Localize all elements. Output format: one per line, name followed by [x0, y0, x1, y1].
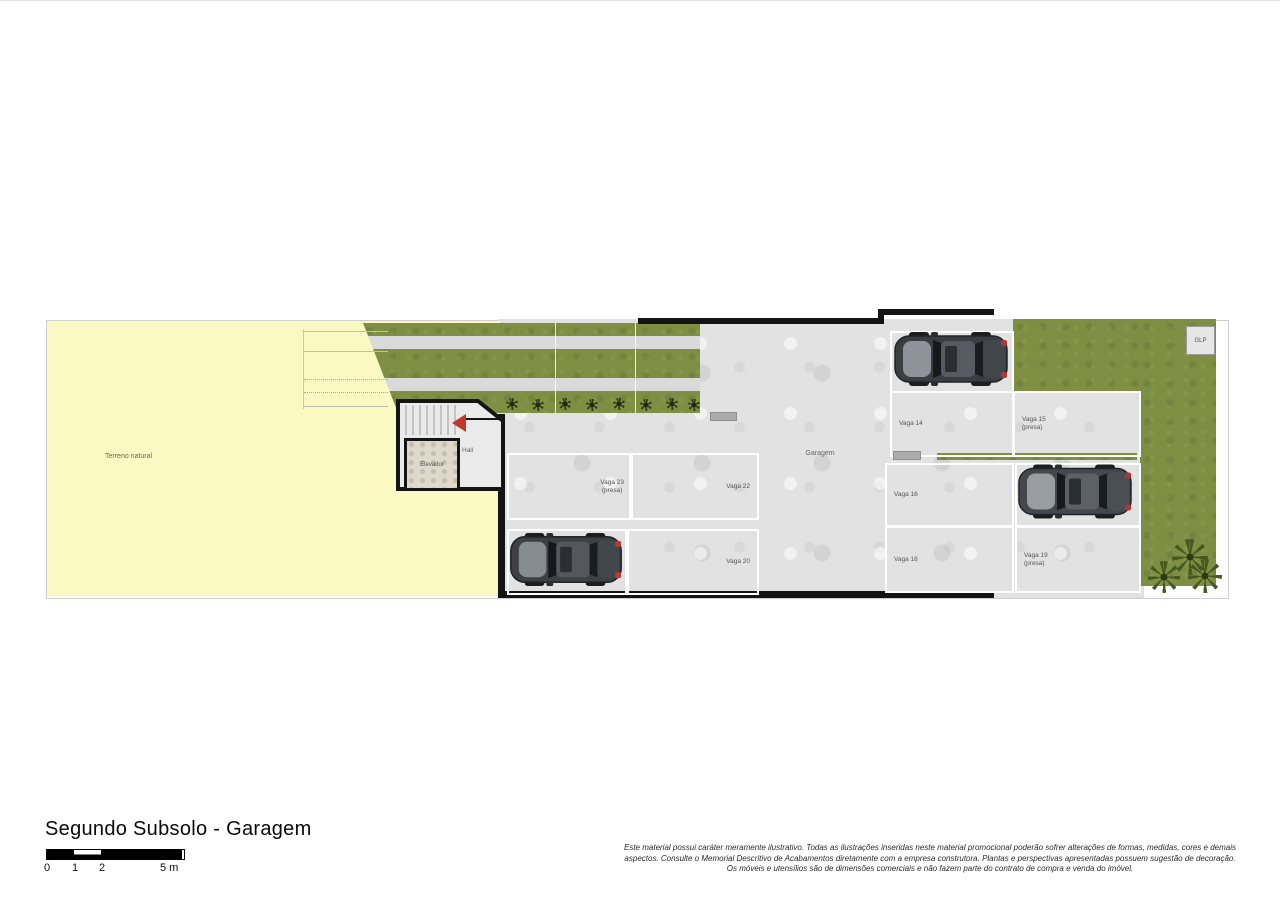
parking-spot-vaga-22: Vaga 22 [629, 453, 759, 520]
parking-spot-vaga-15: Vaga 15(presa) [1013, 391, 1141, 457]
stair-block: Elevador Hall [396, 399, 508, 491]
floor-plan-page: Terreno natural GLP [0, 0, 1280, 906]
shrub-icon [532, 399, 544, 411]
wall-top [878, 309, 994, 315]
palm-tree-icon [1188, 559, 1222, 593]
shrub-icon [613, 398, 625, 410]
shrub-icon [559, 398, 571, 410]
contour-line [304, 331, 388, 332]
shrub-icon [640, 399, 652, 411]
disclaimer-line: Os móveis e utensílios são de dimensões … [592, 864, 1268, 875]
curb-block [893, 451, 921, 460]
glp-box: GLP [1186, 326, 1215, 355]
disclaimer-line: Este material possui caráter meramente i… [592, 843, 1268, 854]
vaga-note: (presa) [1022, 424, 1043, 432]
contour-line-dotted [304, 379, 388, 380]
garage-area-label: Garagem [785, 450, 855, 457]
parking-spot-vaga-20: Vaga 20 [625, 529, 759, 595]
scale-bar [46, 849, 185, 860]
elevator-label: Elevador [420, 462, 444, 468]
wall-top [638, 318, 884, 324]
contour-line [304, 406, 388, 407]
scale-numbers: 0 1 2 5 m [42, 862, 187, 876]
joint-line [635, 323, 636, 413]
shrub-icon [688, 399, 700, 411]
vaga-label: Vaga 23 [600, 479, 624, 487]
vaga-label: Vaga 18 [894, 556, 918, 564]
page-title: Segundo Subsolo - Garagem [45, 818, 312, 841]
contour-line-dotted [304, 392, 388, 393]
scale-segment [74, 850, 101, 859]
vaga-label: Vaga 19 [1024, 552, 1048, 560]
disclaimer-text: Este material possui caráter meramente i… [592, 843, 1268, 875]
disclaimer-line: aspectos. Consulte o Memorial Descritivo… [592, 854, 1268, 865]
ramp-contour-lines [303, 329, 388, 409]
grass-stripe [363, 349, 700, 378]
grass-stripe [363, 323, 700, 336]
scale-tick-0: 0 [44, 862, 50, 874]
scale-segment [101, 850, 182, 859]
paving-stripe [363, 336, 700, 349]
scale-segment [47, 850, 74, 859]
speed-bump-block [710, 412, 737, 421]
glp-label: GLP [1194, 338, 1206, 344]
hall-label: Hall [462, 447, 473, 454]
vaga-label: Vaga 20 [726, 558, 750, 566]
vaga-note: (presa) [1024, 560, 1045, 568]
joint-line [555, 323, 556, 413]
parking-spot-vaga-19: Vaga 19(presa) [1015, 526, 1141, 593]
scale-tick-5m: 5 m [160, 862, 178, 874]
vaga-label: Vaga 16 [894, 491, 918, 499]
palm-tree-icon [1148, 561, 1180, 593]
paving-stripe [363, 378, 700, 391]
terrain-label: Terreno natural [105, 453, 152, 460]
car-icon [893, 332, 1011, 386]
vaga-label: Vaga 22 [726, 483, 750, 491]
contour-line [304, 351, 388, 352]
car-icon [1017, 464, 1135, 519]
parking-spot-vaga-16: Vaga 16 [885, 463, 1014, 527]
shrub-icon [666, 398, 678, 410]
wall-step [878, 309, 884, 324]
scale-tick-1: 1 [72, 862, 78, 874]
scale-tick-2: 2 [99, 862, 105, 874]
elevator-room: Elevador [404, 438, 460, 491]
parking-spot-vaga-23: Vaga 23(presa) [507, 453, 633, 520]
vaga-note: (presa) [602, 487, 623, 495]
vaga-label: Vaga 15 [1022, 416, 1046, 424]
shrub-icon [586, 399, 598, 411]
parking-spot-vaga-14: Vaga 14 [890, 391, 1014, 457]
vaga-label: Vaga 14 [899, 420, 923, 428]
parking-spot-vaga-18: Vaga 18 [885, 526, 1014, 593]
car-icon [509, 531, 625, 588]
